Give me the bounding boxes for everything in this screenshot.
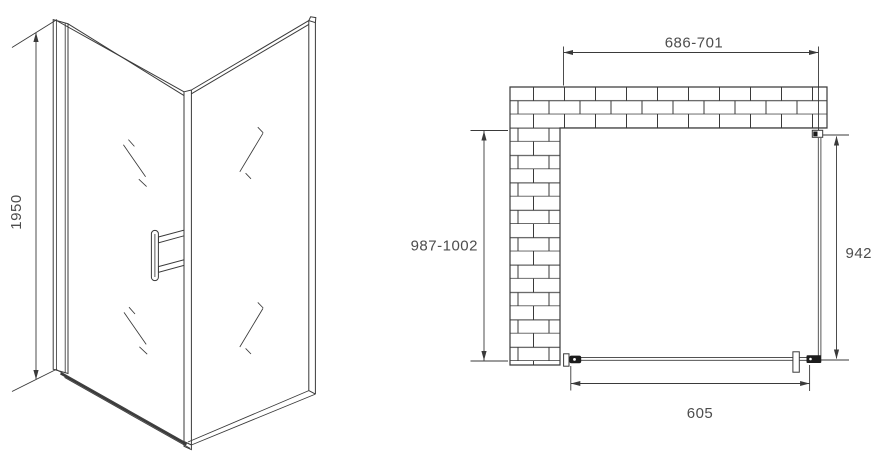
arrow-up-icon xyxy=(834,136,839,146)
front-height-label: 1950 xyxy=(8,194,25,229)
door-panel-glass xyxy=(188,21,315,445)
plan-side-glass-label: 942 xyxy=(846,245,873,262)
door-handle-plan xyxy=(793,352,799,372)
door-side-wall-profile xyxy=(309,17,316,394)
door-hinge-plate xyxy=(564,354,569,366)
plan-view: 686-701 987-1002 942 xyxy=(411,35,872,423)
plan-side-glass-panel xyxy=(812,130,822,356)
plan-door-width-label: 605 xyxy=(687,405,714,422)
handle-bottom-stem xyxy=(158,260,184,273)
technical-drawing-page: 1950 xyxy=(0,0,884,451)
profile-top-cap xyxy=(309,17,316,23)
arrow-right-icon xyxy=(809,50,819,55)
front-height-dimension: 1950 xyxy=(8,20,57,392)
corner-post xyxy=(184,90,191,450)
glass-reflection-marks xyxy=(123,127,263,354)
hinge-pin-icon xyxy=(573,358,576,361)
plan-wall-depth-label: 987-1002 xyxy=(411,238,478,255)
side-panel-wall-profile xyxy=(53,20,68,374)
corner-clamp xyxy=(807,355,822,363)
arrow-up-icon xyxy=(481,131,486,141)
plan-door xyxy=(564,352,822,372)
plan-door-width-dimension: 605 xyxy=(571,365,810,422)
plan-wall-depth-dimension: 987-1002 xyxy=(411,131,508,362)
plan-top-width-label: 686-701 xyxy=(665,35,724,52)
arrow-down-icon xyxy=(834,350,839,360)
handle-top-stem xyxy=(158,230,184,243)
technical-drawing-canvas: 1950 xyxy=(0,0,884,451)
front-view: 1950 xyxy=(8,17,316,450)
corner-clamp-pin-icon xyxy=(809,358,812,361)
plan-side-glass-dimension: 942 xyxy=(821,135,872,360)
arrow-left-icon xyxy=(564,50,574,55)
arrow-down-icon xyxy=(33,370,38,380)
door-handle xyxy=(151,230,184,280)
arrow-right-icon xyxy=(800,381,810,386)
wall-bracket-clamp xyxy=(813,132,817,137)
arrow-left-icon xyxy=(571,381,581,386)
arrow-down-icon xyxy=(481,351,486,361)
brick-wall xyxy=(510,87,827,365)
